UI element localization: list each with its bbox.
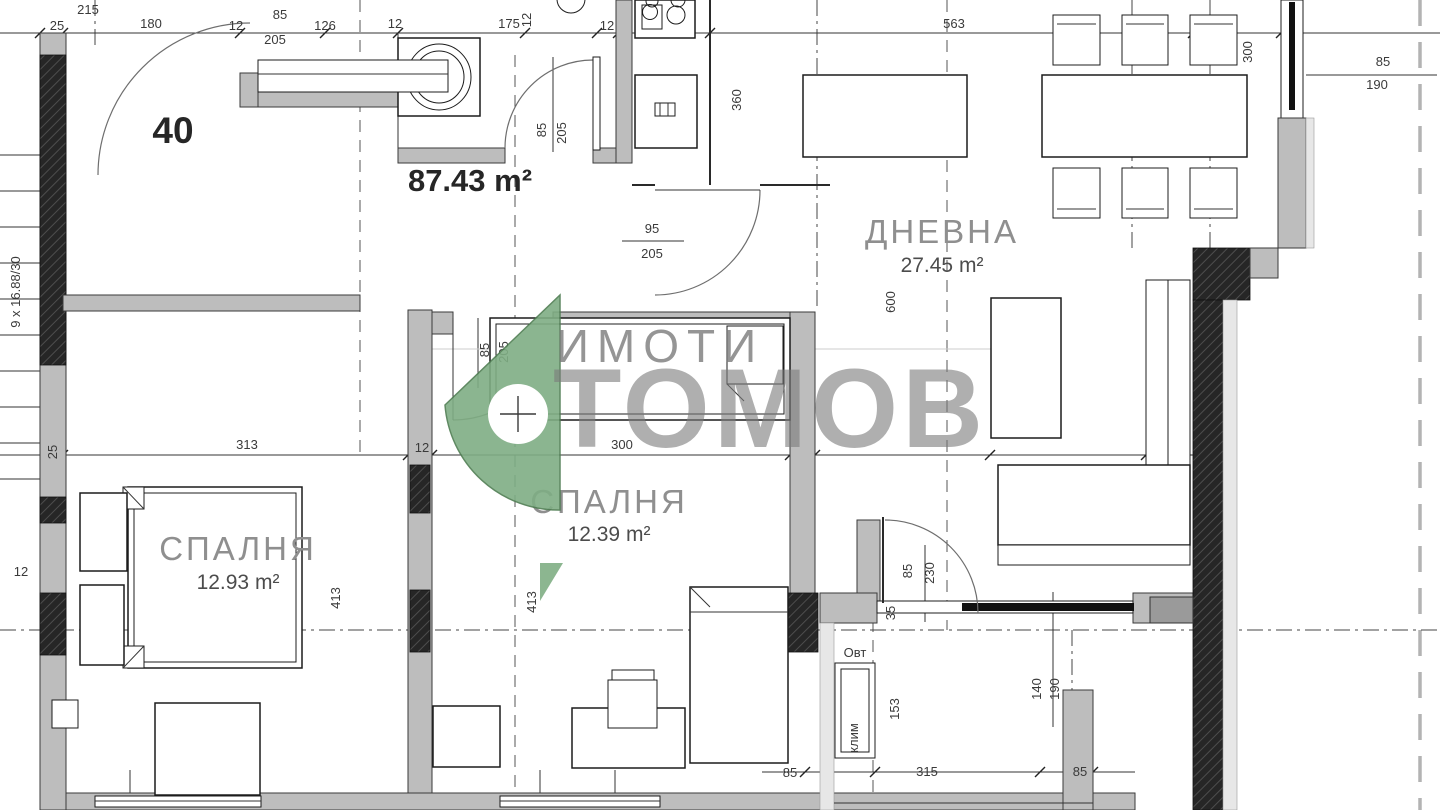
dimension-label: 315: [916, 764, 938, 779]
dimension-label: 413: [524, 591, 539, 613]
wash-basin: [557, 0, 585, 13]
dimension-label: Овт: [844, 645, 867, 660]
bedroom2-wardrobe: [433, 706, 500, 767]
dimension-label: 85: [783, 765, 797, 780]
kitchen-stove: [635, 0, 695, 38]
dimension-label: 35: [883, 606, 898, 620]
dimension-label: 313: [236, 437, 258, 452]
dimension-label: 175: [498, 16, 520, 31]
room-name: СПАЛНЯ: [159, 530, 317, 567]
dimension-label: 190: [1047, 678, 1062, 700]
kitchen-divider-wall: [616, 0, 632, 163]
dimension-label: 140: [1029, 678, 1044, 700]
dimension-label: 600: [883, 291, 898, 313]
dimension-label: 12: [519, 13, 534, 27]
dimension-label: 85: [477, 343, 492, 357]
room-area: 12.39 m²: [568, 523, 651, 546]
dimension-label: клим: [846, 723, 861, 753]
dimension-label: 95: [645, 221, 659, 236]
bathroom-wall: [398, 148, 505, 163]
dimension-label: 300: [1240, 41, 1255, 63]
dimension-label: 413: [328, 587, 343, 609]
dimension-label: 230: [922, 562, 937, 584]
dimension-label: 25: [45, 445, 60, 459]
desk-chair-back: [612, 670, 654, 680]
apartment-number: 40: [152, 110, 193, 151]
sofa: [803, 75, 967, 157]
dimension-label: 190: [1366, 77, 1388, 92]
nightstand: [80, 493, 127, 571]
dimension-label: 205: [641, 246, 663, 261]
floor-plan-drawing: 2152518012852051261217512125633008519085…: [0, 0, 1440, 810]
dimension-label: 215: [77, 2, 99, 17]
dimension-label: 85: [1073, 764, 1087, 779]
bedroom1-wardrobe: [155, 703, 260, 795]
single-bed: [690, 587, 788, 763]
dimension-label: 205: [554, 122, 569, 144]
floor-plan-page: 2152518012852051261217512125633008519085…: [0, 0, 1440, 810]
room-name: ДНЕВНА: [865, 213, 1019, 250]
dimension-label: 12: [415, 440, 429, 455]
dimension-label: 12: [14, 564, 28, 579]
dimension-label: 205: [264, 32, 286, 47]
dimension-label: 126: [314, 18, 336, 33]
dimension-label: 153: [887, 698, 902, 720]
nightstand: [80, 585, 124, 665]
hall-door-arc: [655, 190, 760, 295]
dimension-label: 180: [140, 16, 162, 31]
entry-door-arc: [98, 23, 250, 175]
tv-stand: [1150, 597, 1193, 623]
dimension-label: 360: [729, 89, 744, 111]
total-area-label: 87.43 m²: [408, 163, 532, 198]
dimension-label: 85: [273, 7, 287, 22]
right-wall-corner-column: [1193, 248, 1250, 300]
bedroom1-top-wall: [63, 295, 360, 311]
room-area: 27.45 m²: [901, 254, 984, 277]
entry-closet: [258, 60, 448, 92]
dimension-label: 85: [900, 564, 915, 578]
small-cabinet: [52, 700, 78, 728]
desk-chair: [608, 680, 657, 728]
right-outer-wall: [1193, 300, 1223, 810]
dimension-label: 12: [388, 16, 402, 31]
dimension-label: 85: [534, 123, 549, 137]
dimension-label: 12: [229, 18, 243, 33]
kitchen-sink-cabinet: [635, 75, 697, 148]
bathroom-door-arc: [505, 60, 593, 148]
bedroom2-left-wall: [408, 310, 432, 793]
dimension-label: 85: [1376, 54, 1390, 69]
dimension-label: 12: [600, 18, 614, 33]
dimension-label: 563: [943, 16, 965, 31]
corner-sofa: [991, 280, 1190, 565]
dimension-label: 9 x 16.88/30: [8, 256, 23, 328]
watermark-bottom-text: ТОМОВ: [553, 346, 987, 471]
dimension-label: 25: [50, 18, 64, 33]
room-area: 12.93 m²: [197, 571, 280, 594]
dining-table: [1042, 75, 1247, 157]
watermark: ИМОТИ ТОМОВ: [445, 295, 987, 601]
